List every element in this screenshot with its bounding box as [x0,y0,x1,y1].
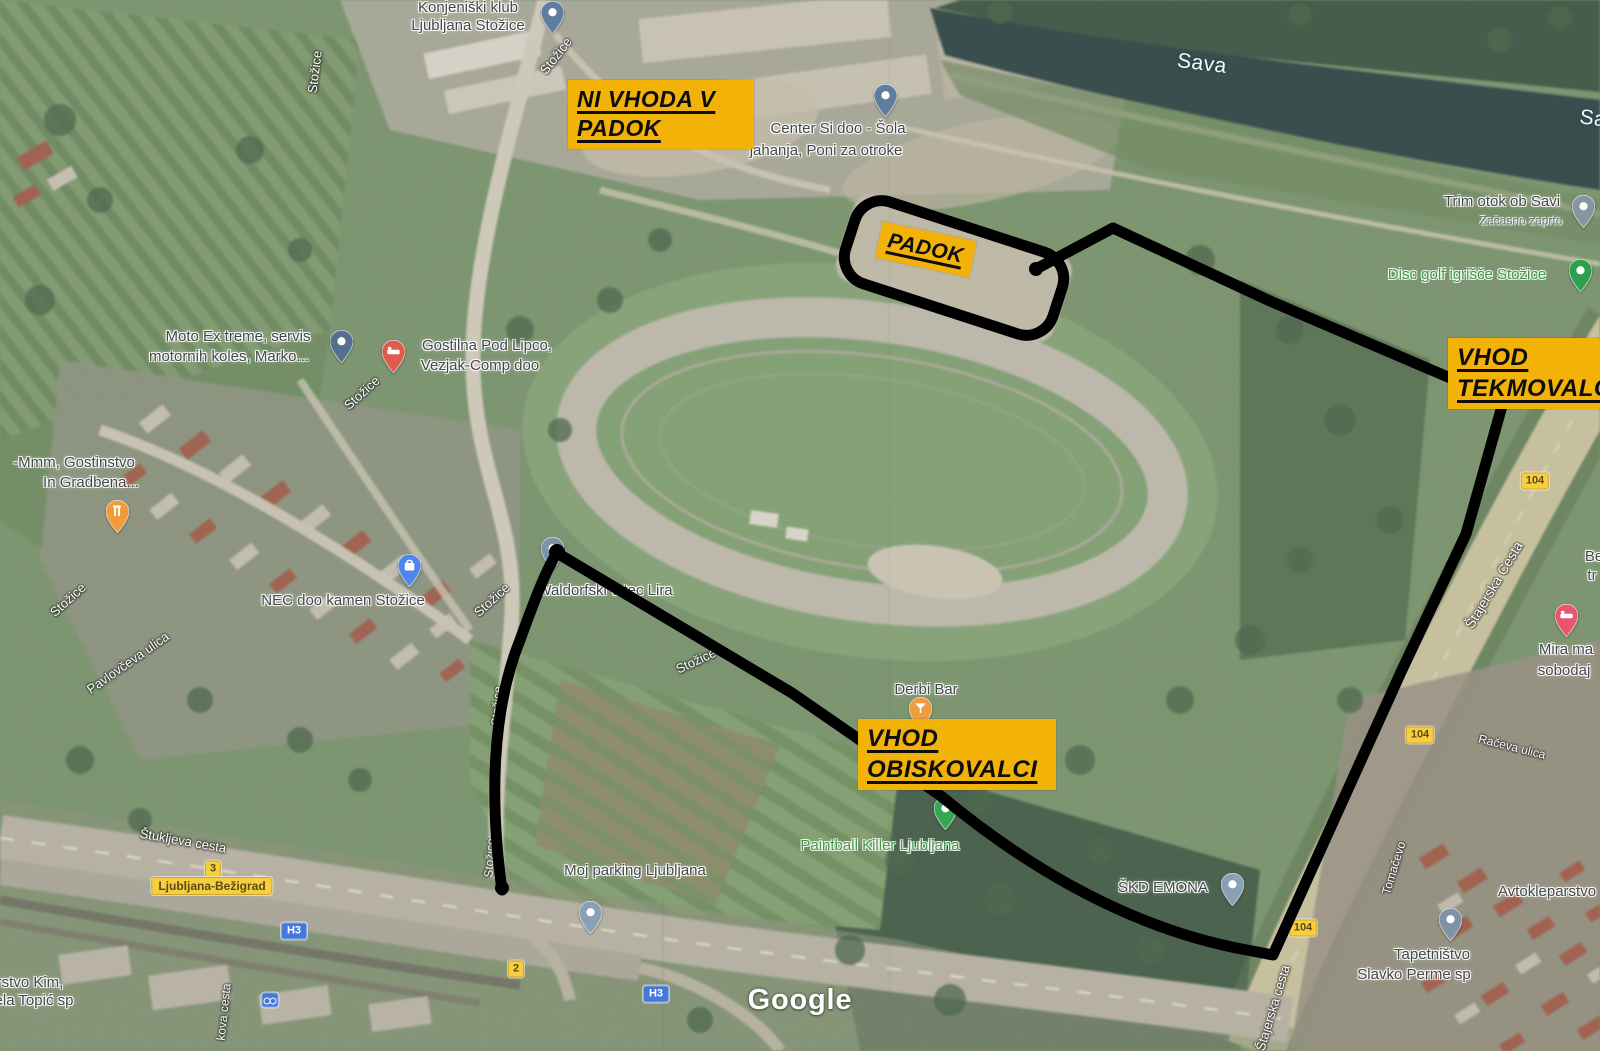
annotation-paddock: PADOK [875,221,977,277]
annotation-text: VHOD [867,724,1047,755]
annotation-text: PADOK [885,228,967,271]
map-canvas[interactable]: Konjeniški klubLjubljana StožiceCenter S… [0,0,1600,1051]
annotation-text: PADOK [577,114,745,143]
annotation-text: TEKMOVALCI [1457,374,1600,405]
annotation-text: VHOD [1457,343,1600,374]
annotation-layer: NI VHODA VPADOKPADOKVHODTEKMOVALCIVHODOB… [0,0,1600,1051]
annotation-no-entry-paddock: NI VHODA VPADOK [568,80,754,149]
annotation-entrance-visitors: VHODOBISKOVALCI [858,719,1056,790]
annotation-text: NI VHODA V [577,85,745,114]
annotation-entrance-competitors: VHODTEKMOVALCI [1448,338,1600,409]
annotation-text: OBISKOVALCI [867,755,1047,786]
